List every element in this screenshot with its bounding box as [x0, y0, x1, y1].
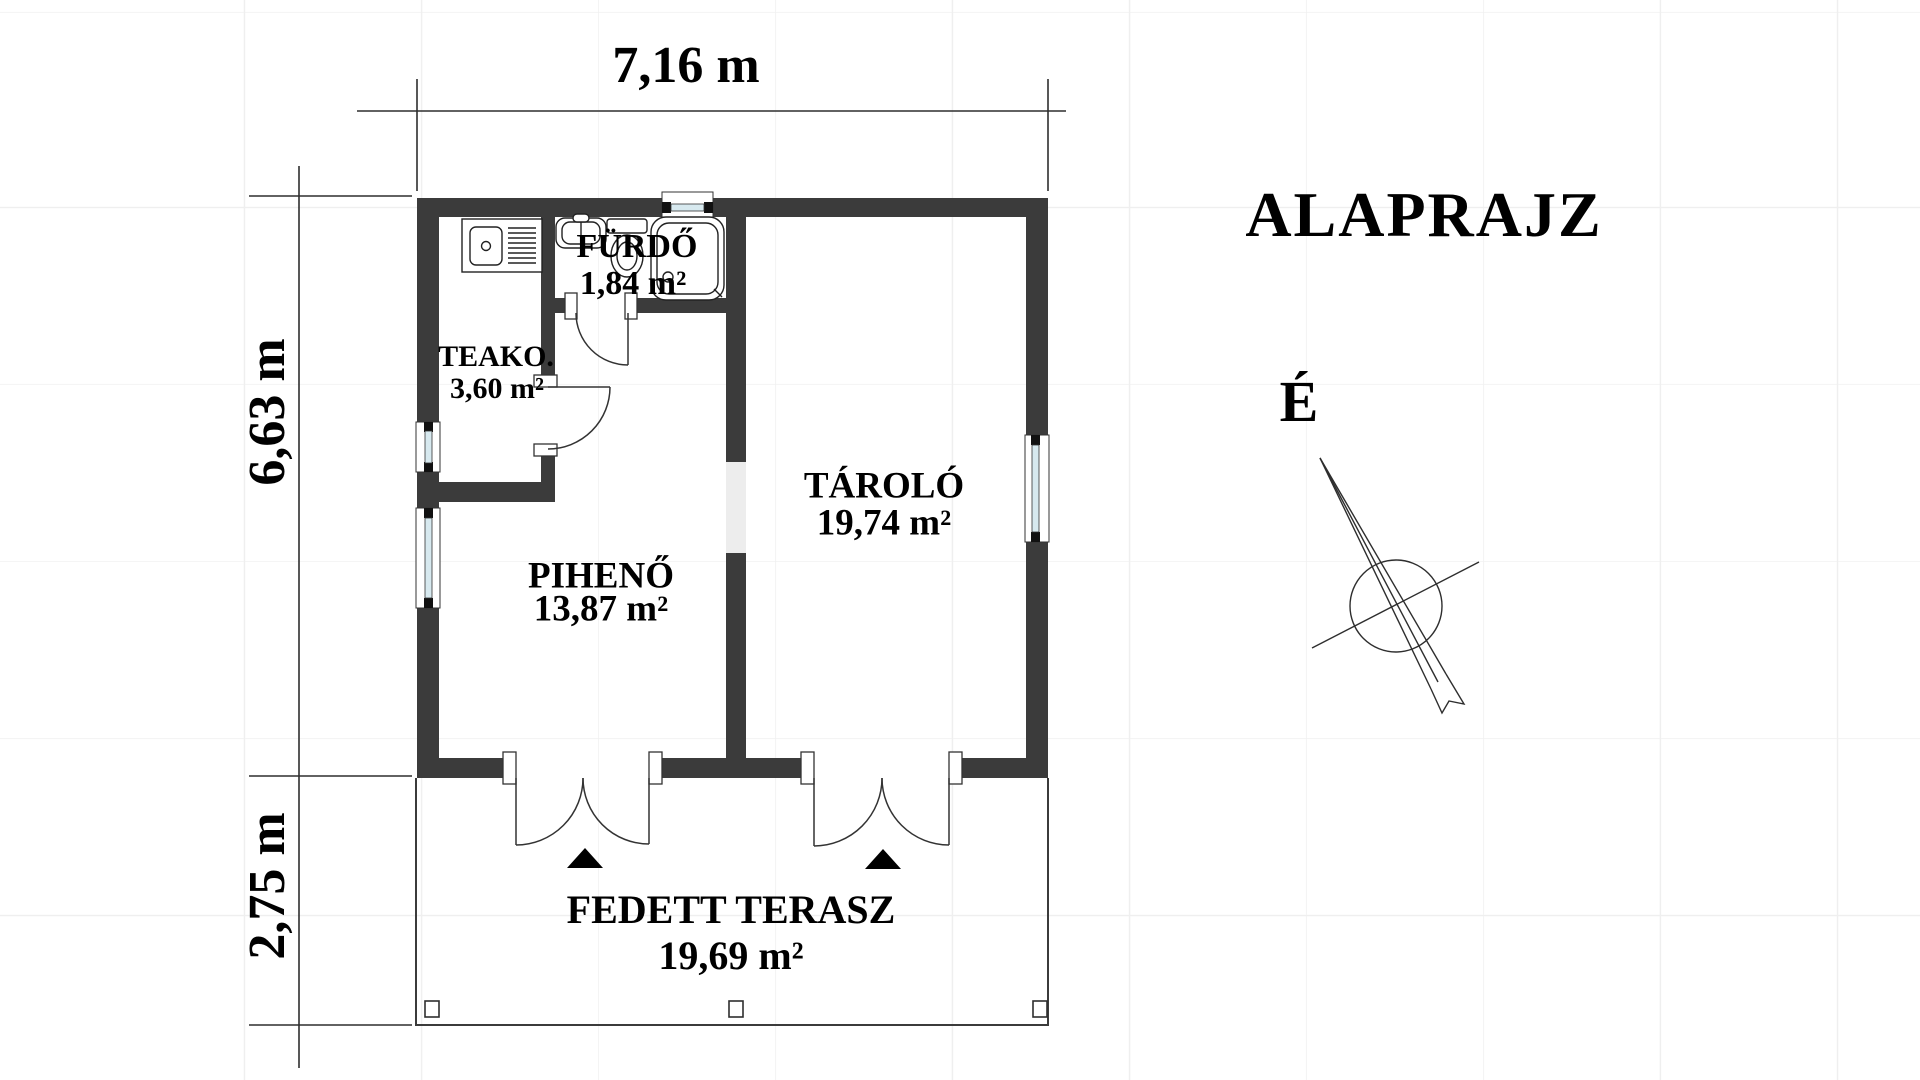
dimension-width-label: 7,16 m	[612, 40, 759, 92]
room-furdo-area: 1,84 m²	[580, 267, 687, 301]
room-tarolo-name: TÁROLÓ	[804, 468, 964, 505]
north-label: É	[1280, 373, 1319, 431]
room-terasz-name: FEDETT TERASZ	[567, 890, 896, 930]
north-compass-icon	[1312, 458, 1479, 713]
dimension-terrace-label: 2,75 m	[242, 812, 294, 959]
window-left-lower	[416, 508, 440, 608]
window-right-storage	[1025, 435, 1049, 542]
wall-opening-piheno-tarolo	[726, 462, 746, 553]
door-terrace-tarolo	[801, 752, 962, 846]
room-teakonyha-name: TEAKO.	[438, 342, 554, 372]
room-furdo-name: FÜRDŐ	[577, 230, 698, 264]
window-top-bathroom	[662, 192, 713, 217]
window-left-upper	[416, 422, 440, 472]
dimension-height-label: 6,63 m	[242, 338, 294, 485]
room-tarolo-area: 19,74 m²	[817, 505, 951, 542]
page-title: ALAPRAJZ	[1245, 183, 1602, 247]
door-bathroom	[565, 293, 637, 365]
room-piheno-area: 13,87 m²	[534, 591, 668, 628]
entrance-arrow-tarolo	[865, 849, 901, 869]
kitchen-counter	[462, 219, 542, 272]
floor-plan-canvas: 7,16 m 6,63 m 2,75 m ALAPRAJZ É FÜRDŐ 1,…	[0, 0, 1920, 1080]
entrance-arrows	[567, 848, 901, 869]
door-terrace-piheno	[503, 752, 662, 845]
room-terasz-area: 19,69 m²	[658, 936, 803, 976]
entrance-arrow-piheno	[567, 848, 603, 868]
door-teakonyha	[534, 375, 610, 456]
terrace-posts	[425, 1001, 1047, 1017]
room-teakonyha-area: 3,60 m²	[450, 374, 544, 404]
